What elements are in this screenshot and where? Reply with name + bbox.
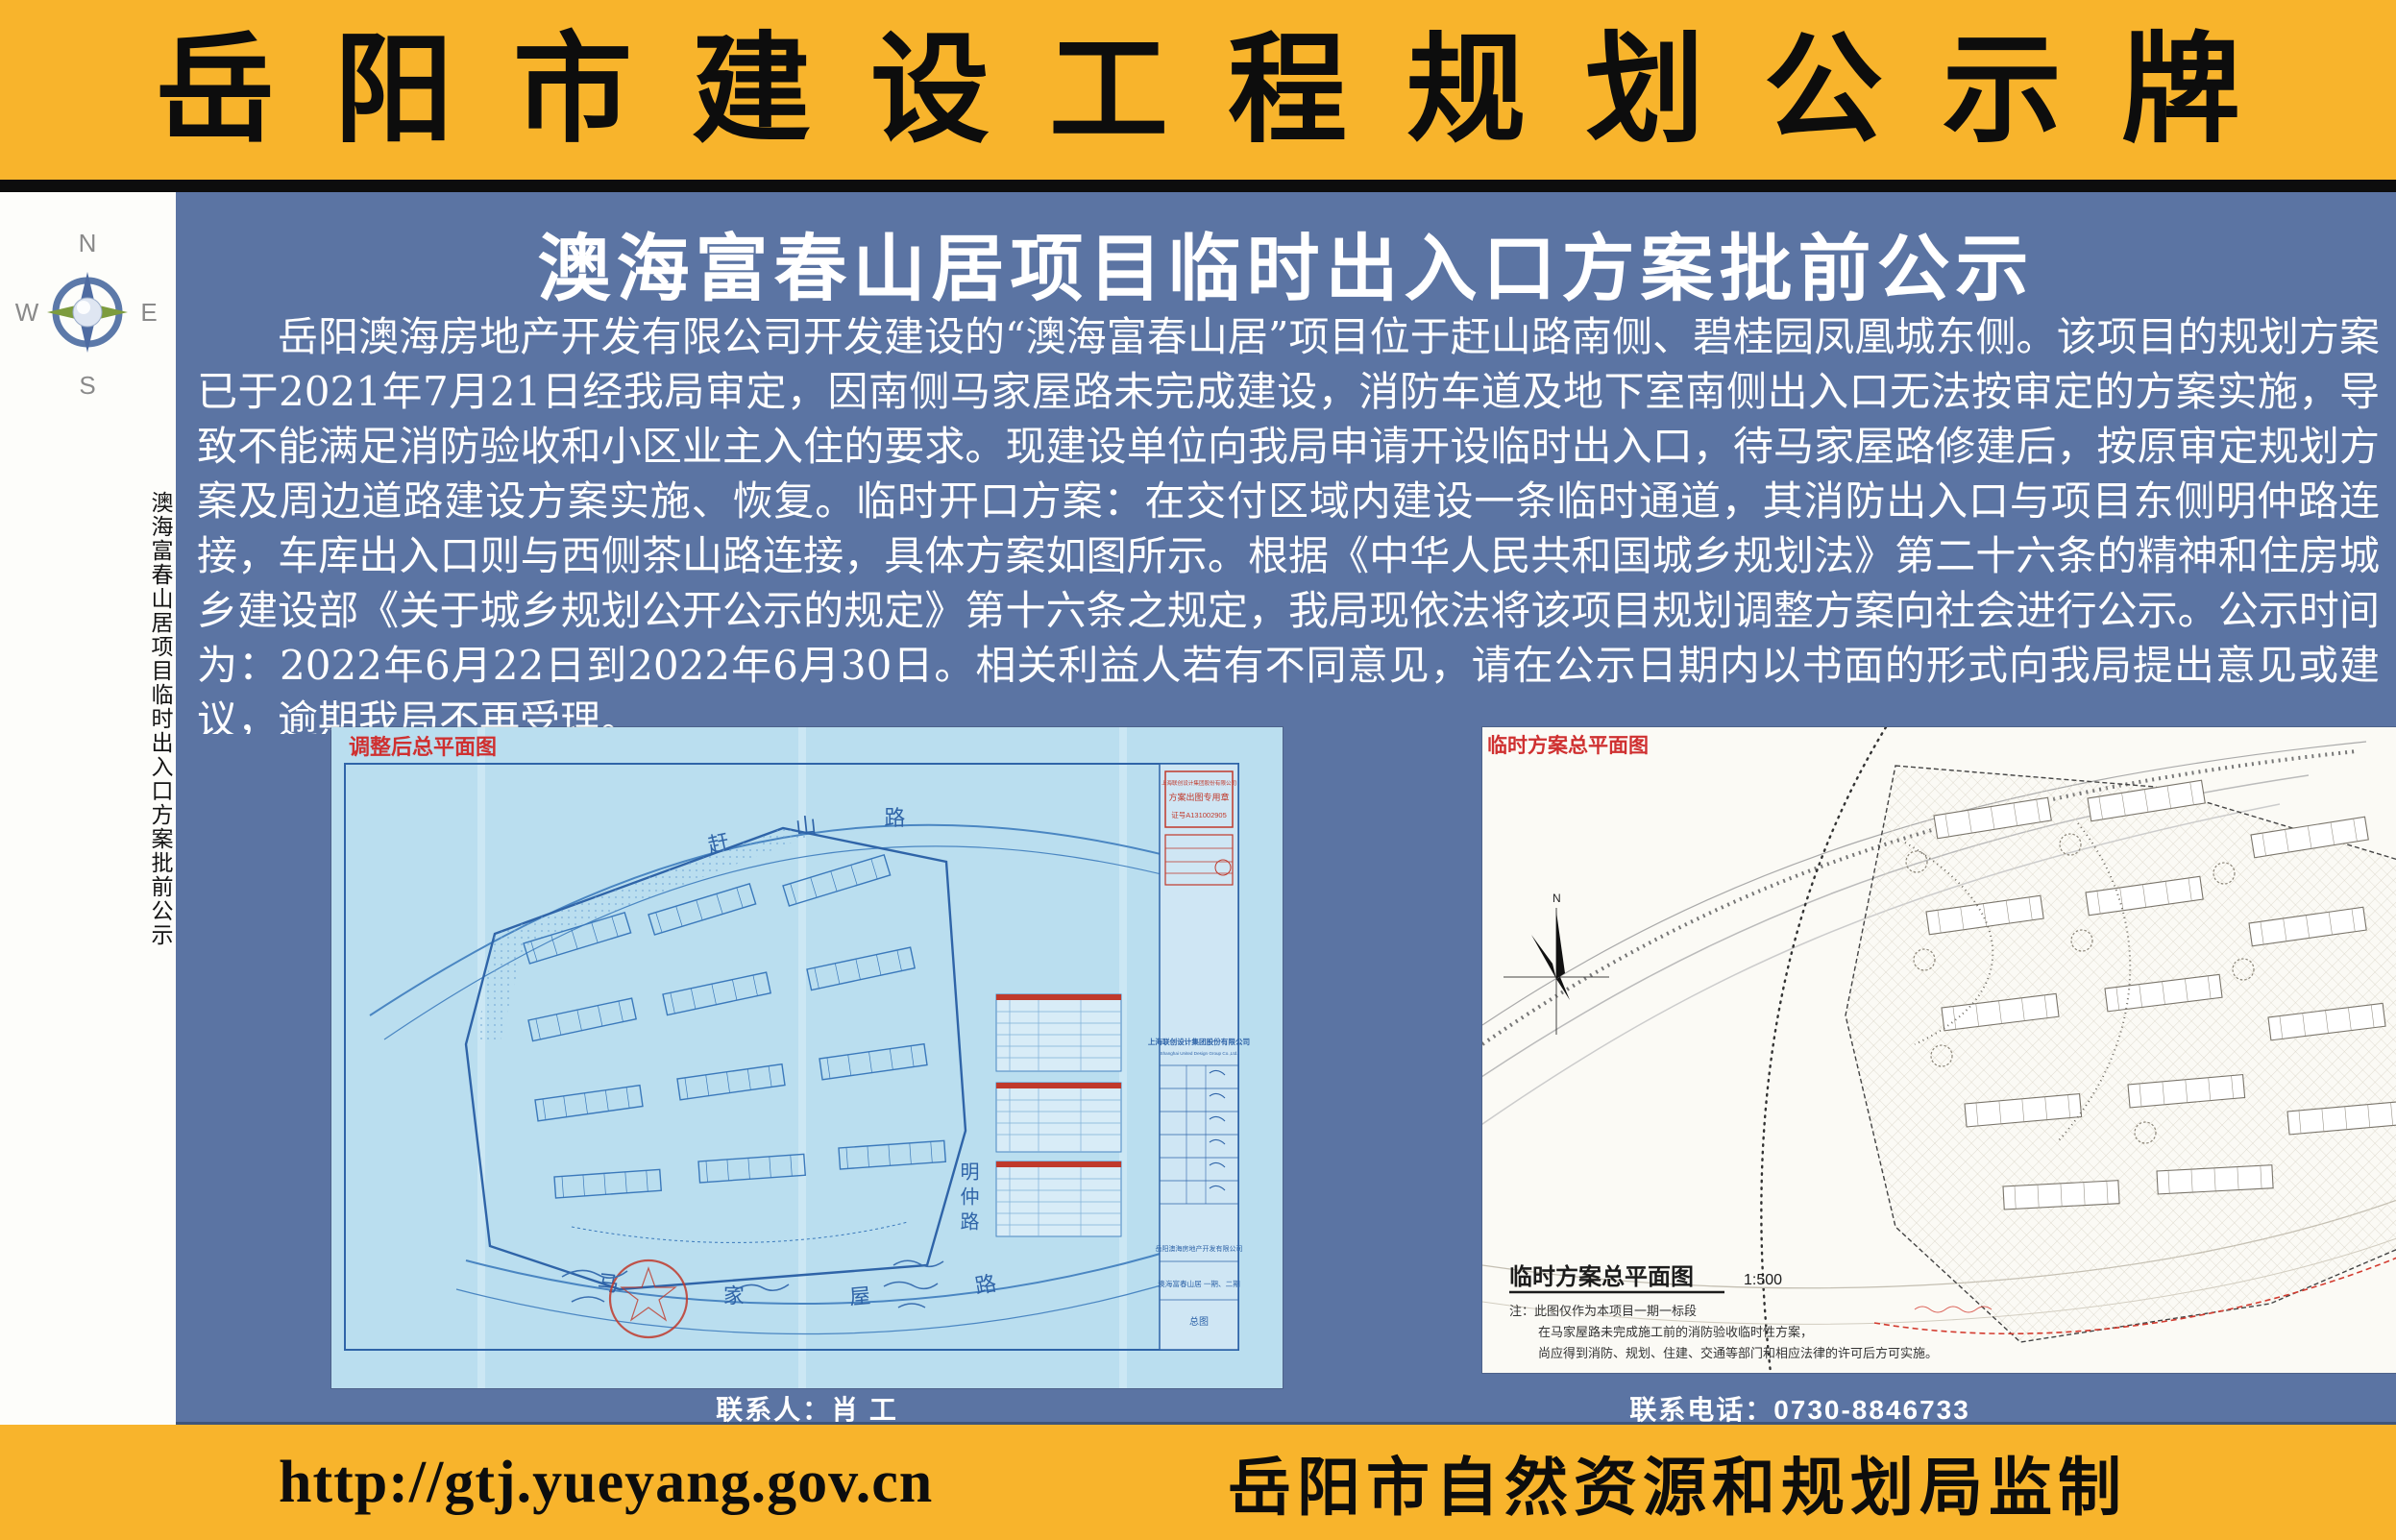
compass-n-label: N — [79, 229, 97, 257]
compass-s-label: S — [79, 371, 95, 400]
notice-panel: 澳海富春山居项目临时出入口方案批前公示 岳阳澳海房地产开发有限公司开发建设的“澳… — [176, 192, 2396, 1425]
sheet-name: 总图 — [1189, 1315, 1209, 1328]
contact-phone: 联系电话：0730-8846733 — [1327, 1389, 2273, 1428]
plan-right-blueprint: 临时方案总平面图 — [1482, 727, 2396, 1373]
left-plan-road-right-label: 明仲路 — [957, 1161, 979, 1236]
svg-text:证号A131002905: 证号A131002905 — [1171, 811, 1227, 819]
compass-e-label: E — [140, 298, 157, 327]
footer-url: http://gtj.yueyang.gov.cn — [279, 1449, 933, 1517]
svg-text:注：此图仅作为本项目一期一标段: 注：此图仅作为本项目一期一标段 — [1509, 1304, 1697, 1318]
client-name: 岳阳澳海房地产开发有限公司 — [1156, 1244, 1243, 1253]
footer-band: http://gtj.yueyang.gov.cn 岳阳市自然资源和规划局监制 — [0, 1425, 2396, 1540]
notice-subtitle: 澳海富春山居项目临时出入口方案批前公示 — [176, 209, 2396, 315]
board-title: 岳阳市建设工程规划公示牌 — [96, 31, 2300, 150]
notice-body: 岳阳澳海房地产开发有限公司开发建设的“澳海富春山居”项目位于赶山路南侧、碧桂园凤… — [197, 309, 2380, 734]
footer-issuer: 岳阳市自然资源和规划局监制 — [1228, 1436, 2127, 1528]
compass-icon: N S W E — [6, 219, 169, 402]
left-sidebar: N S W E 澳海富春山居项目临时出入口方案批前公示 — [0, 192, 176, 1425]
right-plan-corner-label: 临时方案总平面图 — [1487, 734, 1649, 757]
legend-scale: 1:500 — [1744, 1272, 1782, 1288]
left-plan-title-block: 上海联创设计集团股份有限公司 方案出图专用章 证号A131002905 上海联创… — [1148, 764, 1250, 1350]
svg-text:方案出图专用章: 方案出图专用章 — [1168, 792, 1229, 802]
left-plan-tables — [996, 994, 1121, 1236]
legend-title: 临时方案总平面图 — [1509, 1263, 1694, 1290]
compass-w-label: W — [15, 298, 39, 327]
right-plan-site — [1846, 766, 2396, 1342]
content-area: N S W E 澳海富春山居项目临时出入口方案批前公示 澳海富春山居项目临时出入… — [0, 192, 2396, 1425]
svg-text:N: N — [1553, 892, 1561, 905]
notice-board: 岳阳市建设工程规划公示牌 N S — [0, 0, 2396, 1540]
svg-text:在马家屋路未完成施工前的消防验收临时性方案，: 在马家屋路未完成施工前的消防验收临时性方案， — [1538, 1325, 1813, 1339]
svg-text:尚应得到消防、规划、住建、交通等部门和相应法律的许可后方可实: 尚应得到消防、规划、住建、交通等部门和相应法律的许可后方可实施。 — [1538, 1346, 1938, 1360]
contact-person: 联系人：肖 工 — [331, 1389, 1283, 1428]
sidebar-vertical-title: 澳海富春山居项目临时出入口方案批前公示 — [0, 411, 176, 1026]
divider-bar — [0, 180, 2396, 192]
compass-rose: N S W E — [15, 229, 158, 400]
header-band: 岳阳市建设工程规划公示牌 — [0, 0, 2396, 180]
svg-text:上海联创设计集团股份有限公司: 上海联创设计集团股份有限公司 — [1161, 779, 1236, 787]
plans-row: 调整后总平面图 赶山路 马家屋路 明仲路 — [331, 727, 2396, 1390]
project-name: 澳海富春山居 一期、二期 — [1158, 1279, 1240, 1288]
design-firm-en: Shanghai United Design Group Co.,Ltd. — [1161, 1051, 1238, 1056]
left-plan-corner-label: 调整后总平面图 — [349, 735, 497, 759]
plan-left-blueprint: 调整后总平面图 赶山路 马家屋路 明仲路 — [331, 727, 1283, 1388]
design-firm-cn: 上海联创设计集团股份有限公司 — [1148, 1037, 1250, 1046]
captions-row: 联系人：肖 工 联系电话：0730-8846733 — [176, 1389, 2396, 1425]
